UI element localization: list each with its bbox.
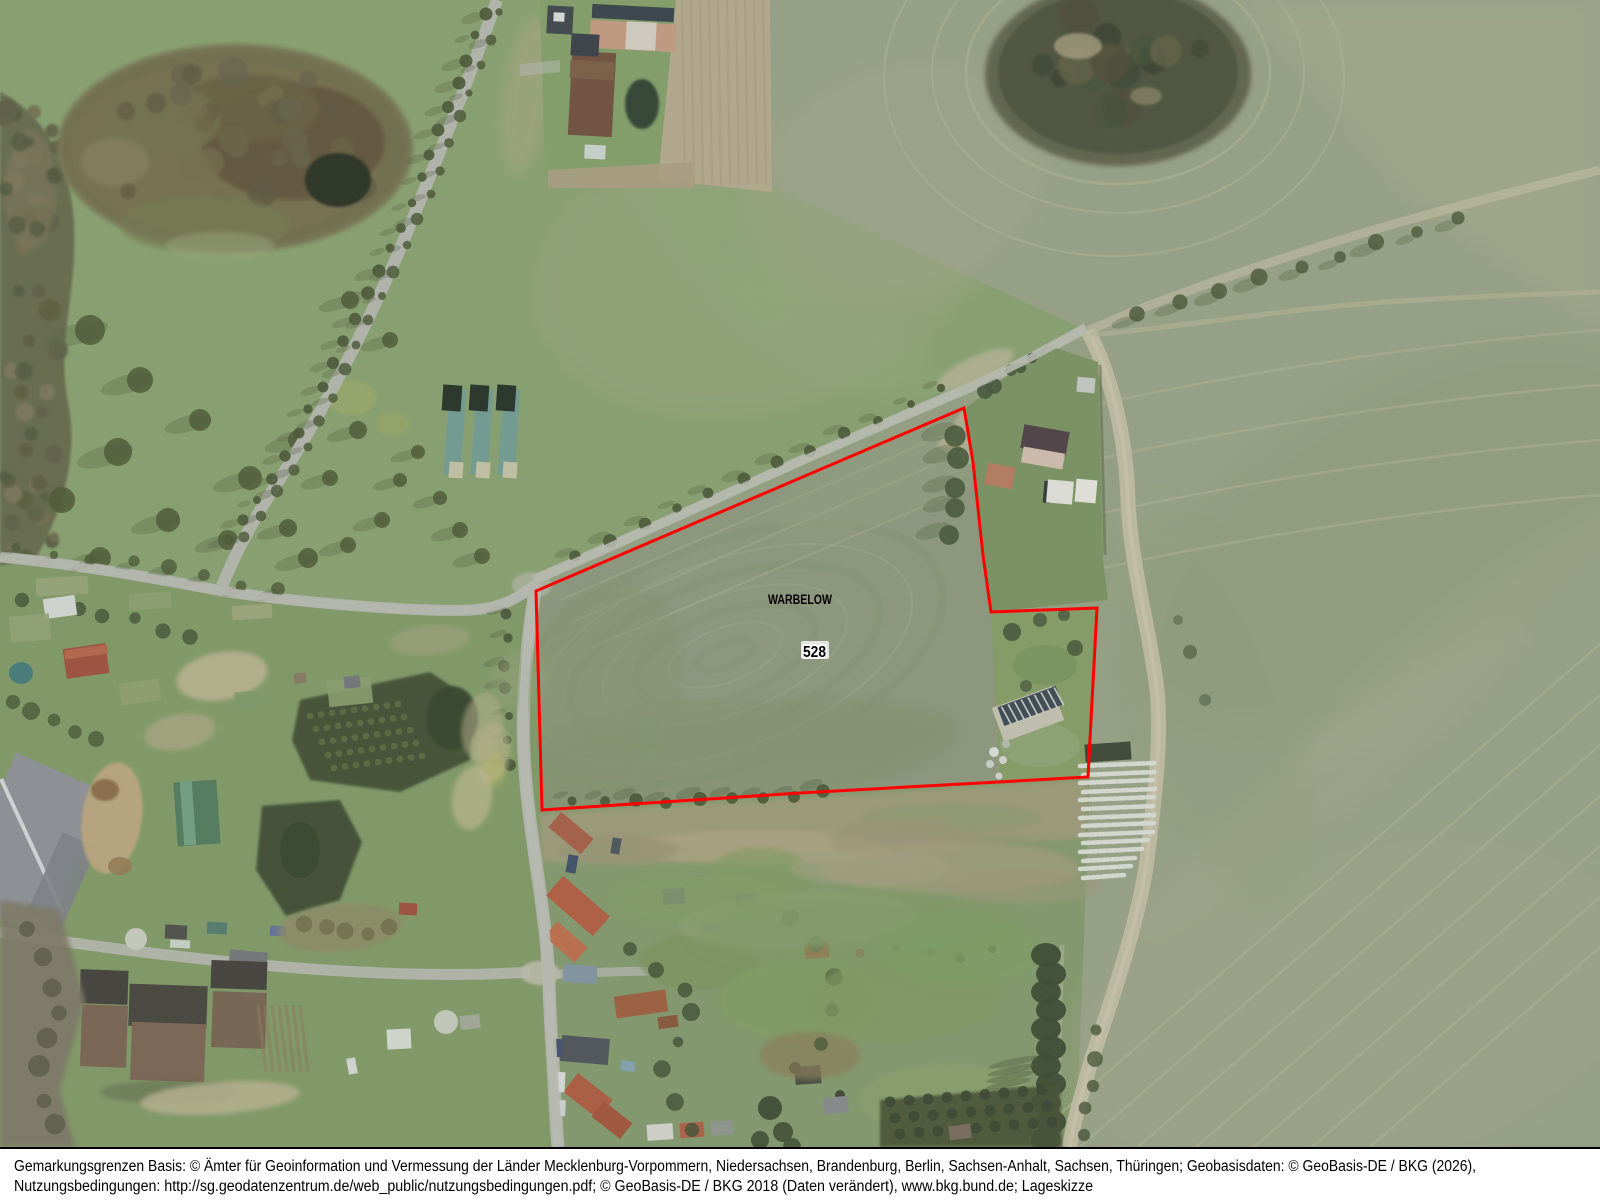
svg-text:WARBELOW: WARBELOW (768, 592, 832, 607)
svg-text:Gemarkungsgrenzen Basis: © Ämt: Gemarkungsgrenzen Basis: © Ämter für Geo… (14, 1158, 1476, 1175)
svg-text:Nutzungsbedingungen: http://sg: Nutzungsbedingungen: http://sg.geodatenz… (14, 1178, 1093, 1195)
svg-text:528: 528 (803, 644, 826, 661)
